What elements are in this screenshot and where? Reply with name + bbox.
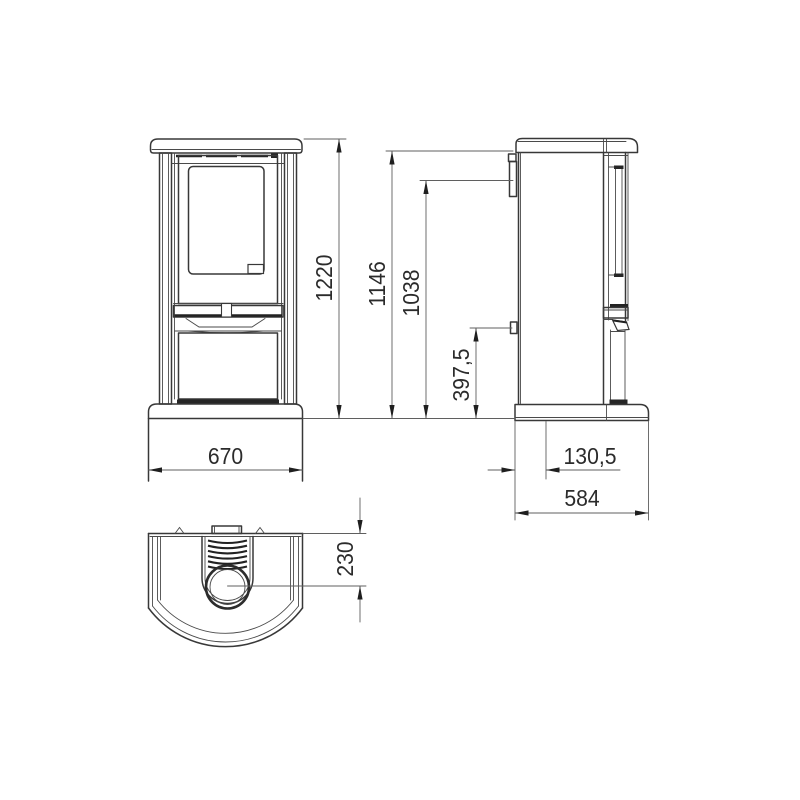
dim-label-130-5: 130,5 (564, 443, 617, 469)
front-fire-door (179, 156, 278, 304)
front-door-glass (189, 167, 265, 275)
dim-label-230: 230 (332, 541, 358, 576)
front-top-plate (151, 139, 303, 153)
side-lower-panel (610, 330, 628, 404)
top-flue-collar-outer (206, 566, 249, 609)
dim-overall-depth: 584 (515, 485, 649, 515)
side-foot-strip (610, 400, 628, 405)
front-middle-band (174, 304, 284, 318)
front-door-latch (248, 265, 264, 274)
top-marker-triangle-left (175, 528, 184, 534)
front-band-center-tab (222, 304, 232, 318)
front-lower-door (179, 333, 278, 399)
top-left-wall (149, 534, 161, 609)
dim-label-1038: 1038 (398, 269, 424, 316)
top-flue-stub (212, 526, 242, 534)
front-view (149, 139, 303, 481)
dim-label-670: 670 (208, 443, 243, 469)
dim-label-397-5: 397,5 (448, 349, 474, 402)
dim-overall-height: 1220 (311, 139, 341, 419)
front-left-column (160, 153, 172, 404)
dim-rear-connection-height: 397,5 (448, 328, 478, 419)
top-curved-front (149, 600, 303, 647)
side-glass-edge (609, 166, 624, 278)
top-flue-collar-inner (210, 570, 245, 605)
front-right-column (285, 153, 297, 404)
dim-flue-center-height: 1038 (398, 181, 428, 419)
side-rear-flue-stub-top (509, 154, 517, 162)
dimensions: 1220 1146 1038 397,5 670 (149, 139, 649, 622)
stove-dimension-drawing: 1220 1146 1038 397,5 670 (0, 0, 800, 800)
dim-label-1220: 1220 (311, 254, 337, 301)
dim-overall-width: 670 (149, 443, 303, 472)
top-marker-triangle-right (256, 528, 265, 534)
technical-drawing-canvas: 1220 1146 1038 397,5 670 (0, 0, 800, 800)
dim-flue-top-height: 1146 (364, 151, 394, 419)
dim-flue-offset: 130,5 (488, 443, 620, 472)
side-rear-flue-outlet (510, 162, 517, 197)
top-right-wall (291, 534, 303, 609)
dim-label-1146: 1146 (364, 261, 390, 306)
side-base (515, 405, 649, 421)
dim-label-584: 584 (564, 485, 599, 511)
side-top-plate (516, 139, 638, 153)
side-view (509, 139, 649, 421)
dim-top-flue-offset: 230 (332, 498, 362, 622)
